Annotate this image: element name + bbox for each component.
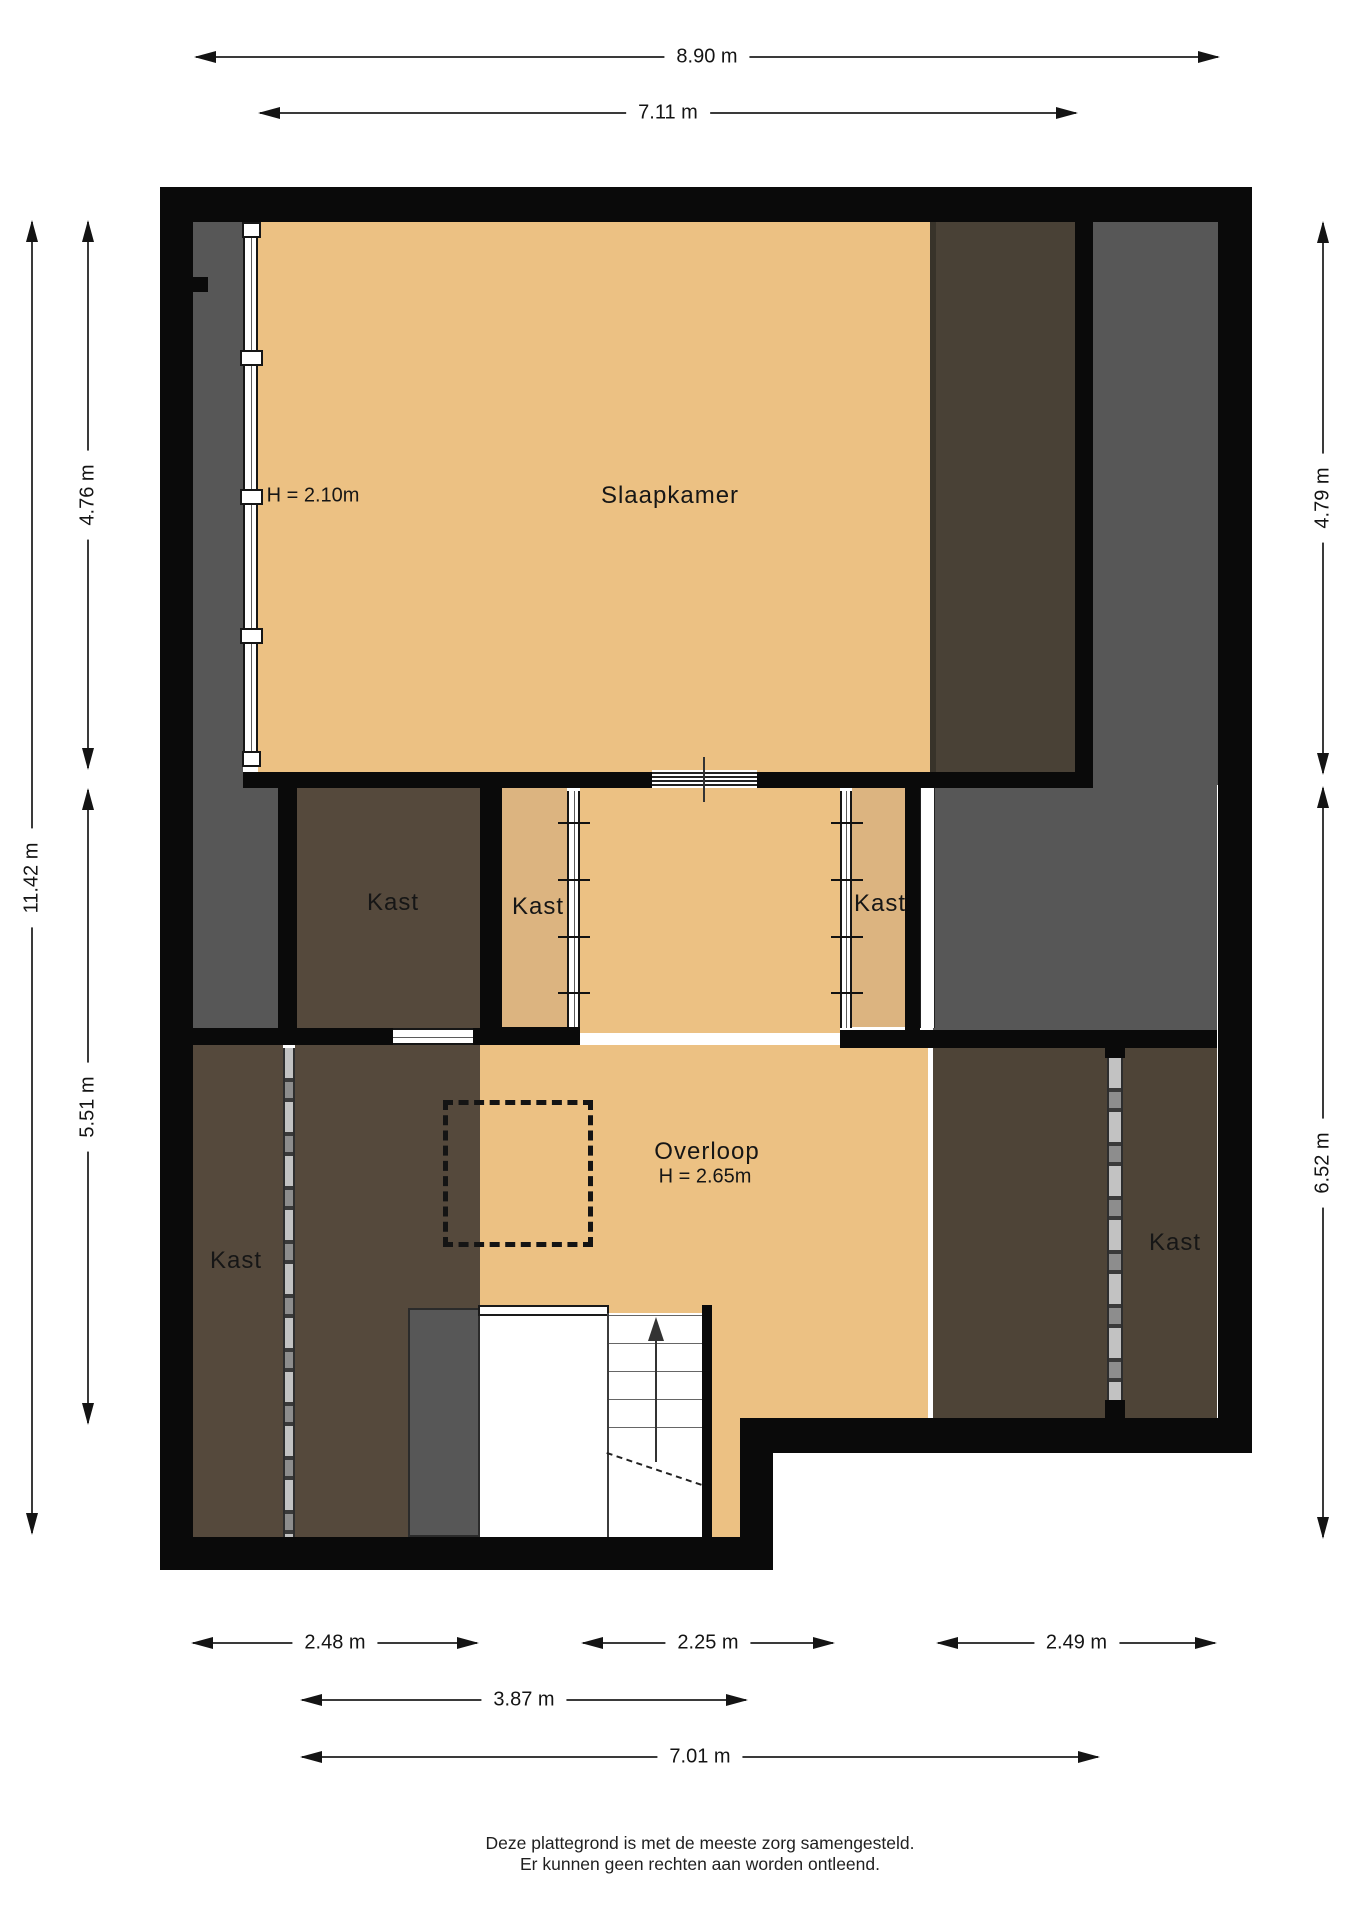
window-cap: [242, 222, 261, 238]
wall-stub-left: [193, 277, 208, 292]
room-label-kast-right-mid: Kast: [854, 890, 906, 918]
dim-label: 5.51 m: [76, 1062, 101, 1151]
closet-front-tick: [558, 879, 590, 881]
window-mullion: [240, 350, 263, 366]
dim-label: 3.87 m: [481, 1688, 566, 1713]
stair-tread: [609, 1315, 704, 1316]
closet-front-tick: [831, 992, 863, 994]
room-label-slaapkamer: Slaapkamer: [601, 482, 739, 510]
stair-direction-arrow: [655, 1338, 657, 1462]
stair-direction-arrowhead: [648, 1317, 664, 1341]
closet-front-tick: [831, 822, 863, 824]
wall-outer-bottom-left: [160, 1537, 773, 1570]
wall-stairwell-right: [702, 1305, 712, 1537]
wall-slaapkamer-bottom-left: [243, 772, 652, 788]
wall-outer-step: [740, 1418, 773, 1570]
wall-mid-center: [482, 1027, 580, 1045]
height-label-overloop: H = 2.65m: [659, 1166, 752, 1189]
dim-label: 7.01 m: [657, 1745, 742, 1770]
wall-mid-right: [840, 1030, 1217, 1048]
dim-label: 4.79 m: [1311, 453, 1336, 542]
room-label-overloop: Overloop: [654, 1138, 759, 1166]
room-label-kast-lower-right: Kast: [1149, 1229, 1201, 1257]
dim-label: 6.52 m: [1311, 1118, 1336, 1207]
zone-low-headroom-slaapkamer-right: [936, 222, 1075, 772]
closet-front-tick: [558, 992, 590, 994]
wall-kast-left-east: [480, 772, 502, 1045]
room-overloop-lower-right-floor: [712, 1313, 928, 1418]
wall-slaapkamer-bottom-right: [757, 772, 1093, 788]
closet-front-tick: [558, 822, 590, 824]
dim-label: 2.49 m: [1034, 1631, 1119, 1656]
zone-low-headroom-right-mid: [933, 785, 1217, 1033]
vide-dashed-outline: [443, 1100, 593, 1247]
closet-front-tick: [831, 879, 863, 881]
room-label-kast-lower-left: Kast: [210, 1247, 262, 1275]
wall-outer-right: [1218, 187, 1252, 1453]
wall-outer-top: [160, 187, 1252, 222]
door-center-post: [703, 757, 705, 802]
closet-divider-cap-bottom: [1105, 1400, 1125, 1420]
closet-divider-cap-top: [1105, 1033, 1125, 1058]
dim-label: 7.11 m: [626, 101, 710, 126]
room-label-kast-center: Kast: [512, 893, 564, 921]
closet-front-tick: [831, 936, 863, 938]
window-mullion: [240, 628, 263, 644]
wall-mid-left-a: [193, 1028, 393, 1045]
height-label-slaapkamer: H = 2.10m: [267, 485, 360, 508]
closet-divider-left: [283, 1048, 295, 1537]
zone-low-headroom-left-upper: [193, 222, 243, 772]
stairwell-void: [480, 1313, 607, 1537]
room-label-kast-left-mid: Kast: [367, 889, 419, 917]
zone-low-headroom-right-upper: [1093, 222, 1218, 785]
window-cap: [242, 751, 261, 767]
floorplan-canvas: Slaapkamer H = 2.10m Overloop H = 2.65m …: [0, 0, 1358, 1920]
wall-outer-bottom-right: [773, 1418, 1252, 1453]
closet-divider-right: [1107, 1058, 1123, 1400]
window-in-wall-mid: [393, 1028, 473, 1045]
dim-label: 2.25 m: [665, 1631, 750, 1656]
dim-label: 4.76 m: [76, 450, 101, 539]
room-kast-lower-left-floor: [193, 1045, 283, 1537]
stairwell-flank-wall: [408, 1308, 480, 1537]
closet-front-tick: [558, 936, 590, 938]
wall-mid-left-b: [473, 1028, 482, 1045]
wall-slaapkamer-right: [1075, 222, 1093, 788]
wall-gap: [920, 788, 935, 1028]
stairwell-edge-band: [478, 1305, 609, 1316]
dim-label: 11.42 m: [20, 828, 45, 927]
room-overloop-upper-floor: [580, 788, 840, 1033]
wall-outer-left: [160, 187, 193, 1570]
footer-disclaimer-line2: Er kunnen geen rechten aan worden ontlee…: [520, 1854, 880, 1875]
dim-label: 8.90 m: [664, 45, 749, 70]
footer-disclaimer-line1: Deze plattegrond is met de meeste zorg s…: [486, 1833, 915, 1854]
window-mullion: [240, 489, 263, 505]
wall-kast-left-west: [278, 788, 297, 1028]
room-overloop-bottom-strip: [712, 1418, 740, 1537]
wall-kast-right-east: [905, 772, 920, 1048]
dim-label: 2.48 m: [292, 1631, 377, 1656]
zone-low-headroom-left-mid: [193, 772, 278, 1028]
